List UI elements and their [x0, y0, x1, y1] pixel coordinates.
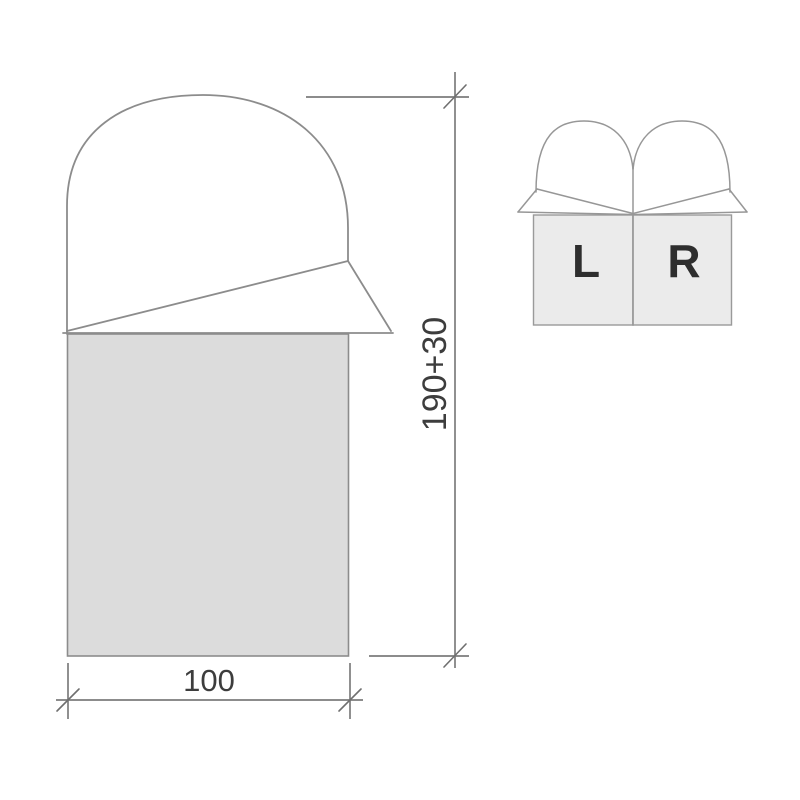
zip-together-pair-group: L R	[518, 121, 747, 325]
right-bag-collar-line	[633, 189, 729, 214]
main-bag-collar-line	[67, 261, 348, 331]
left-bag-shoulder-baseline	[518, 212, 633, 215]
main-bag-group	[63, 95, 393, 656]
main-bag-flap-edge	[348, 261, 391, 331]
left-bag-hood	[536, 121, 633, 192]
height-dimension-label: 190+30	[416, 317, 454, 431]
left-bag-label: L	[572, 235, 600, 287]
diagram-canvas: 190+30 100 L R	[0, 0, 800, 800]
left-bag-flap-edge	[518, 189, 537, 212]
sleeping-bag-spec-diagram: 190+30 100 L R	[0, 0, 800, 800]
right-bag-hood	[633, 121, 730, 192]
main-bag-hood	[67, 95, 348, 334]
width-dimension-label: 100	[183, 663, 235, 698]
right-bag-shoulder-baseline	[633, 212, 747, 215]
right-bag-label: R	[667, 235, 700, 287]
left-bag-collar-line	[537, 189, 633, 214]
right-bag-flap-edge	[729, 189, 747, 212]
width-dimension-group: 100	[56, 663, 363, 719]
main-bag-body	[68, 334, 349, 656]
